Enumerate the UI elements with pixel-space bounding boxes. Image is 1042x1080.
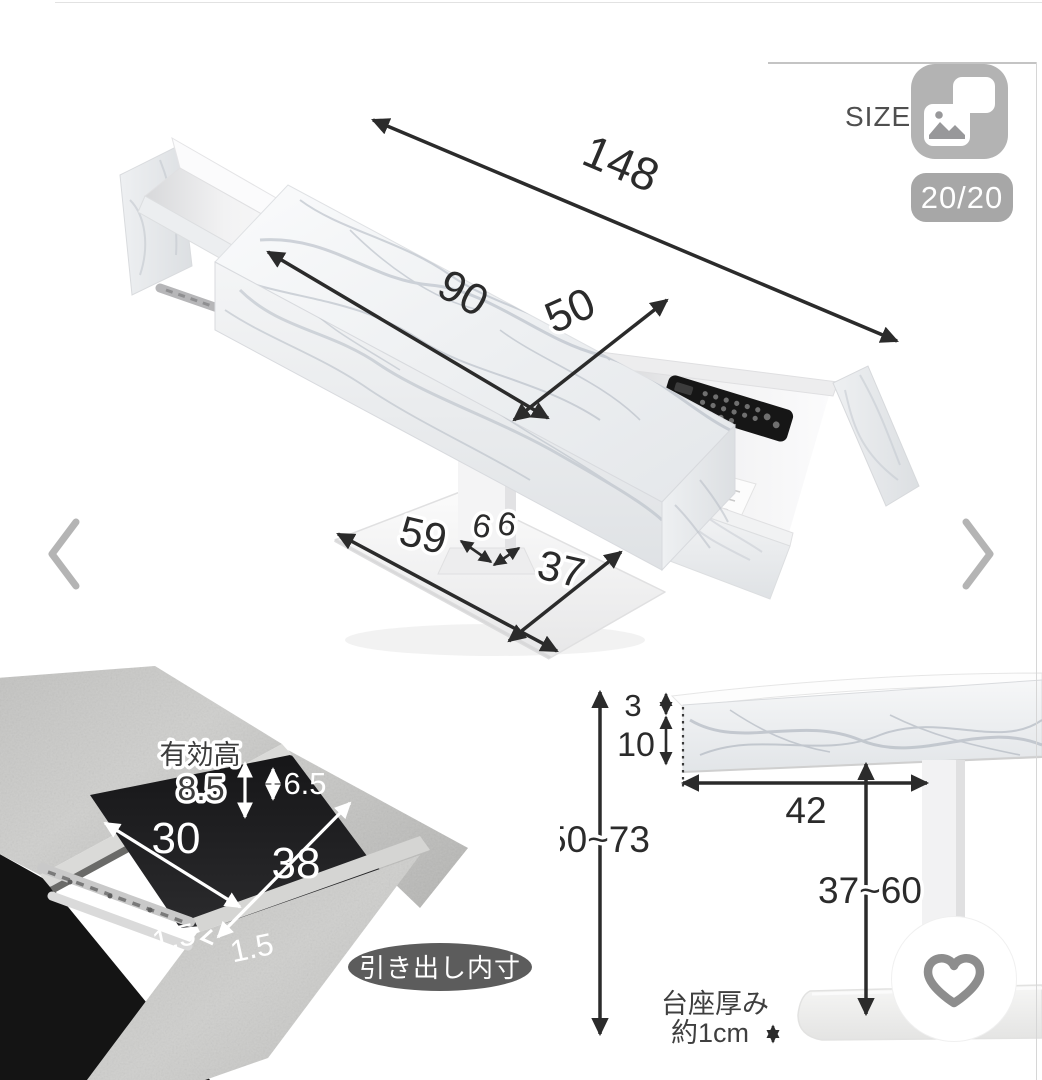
top-hairline [55,2,1042,3]
product-image-viewer: 148 90 50 59 6 6 37 [0,0,1042,1080]
main-dimension-view: 148 90 50 59 6 6 37 [0,0,1042,660]
dim-apron-height: 10 [617,726,655,764]
dim-inner-width: 38 [272,839,321,888]
dim-inner-depth: 30 [152,814,201,863]
base-note-line1: 台座厚み [661,989,769,1019]
label-effective-height: 有効高 [160,740,241,770]
right-border-hairline [1036,62,1037,1080]
base-note-line2: 約1cm [671,1018,749,1048]
dim-opening-height: 6.5 [283,766,326,801]
photo-counter-badge: 20/20 [911,173,1013,222]
chevron-left-icon [44,516,84,592]
panel-top-hairline [768,62,1036,64]
dim-total-height: 50~73 [560,819,650,860]
concrete-table-photo [0,666,468,1080]
heart-icon [919,947,989,1011]
dim-effective-height: 8.5 [177,770,224,808]
dim-total-width: 148 [576,124,667,202]
dim-top-overhang: 42 [785,790,826,831]
favorite-button[interactable] [891,916,1017,1042]
chevron-right-icon [958,516,998,592]
gallery-badge[interactable] [911,64,1008,159]
dim-under-clearance: 37~60 [818,870,922,911]
dim-top-thickness: 3 [624,688,641,723]
drawer-badge-label: 引き出し内寸 [359,953,521,983]
drawer-dimension-view: 有効高 8.5 6.5 30 38 1.5 1.5 引き出し内寸 [0,660,580,1080]
